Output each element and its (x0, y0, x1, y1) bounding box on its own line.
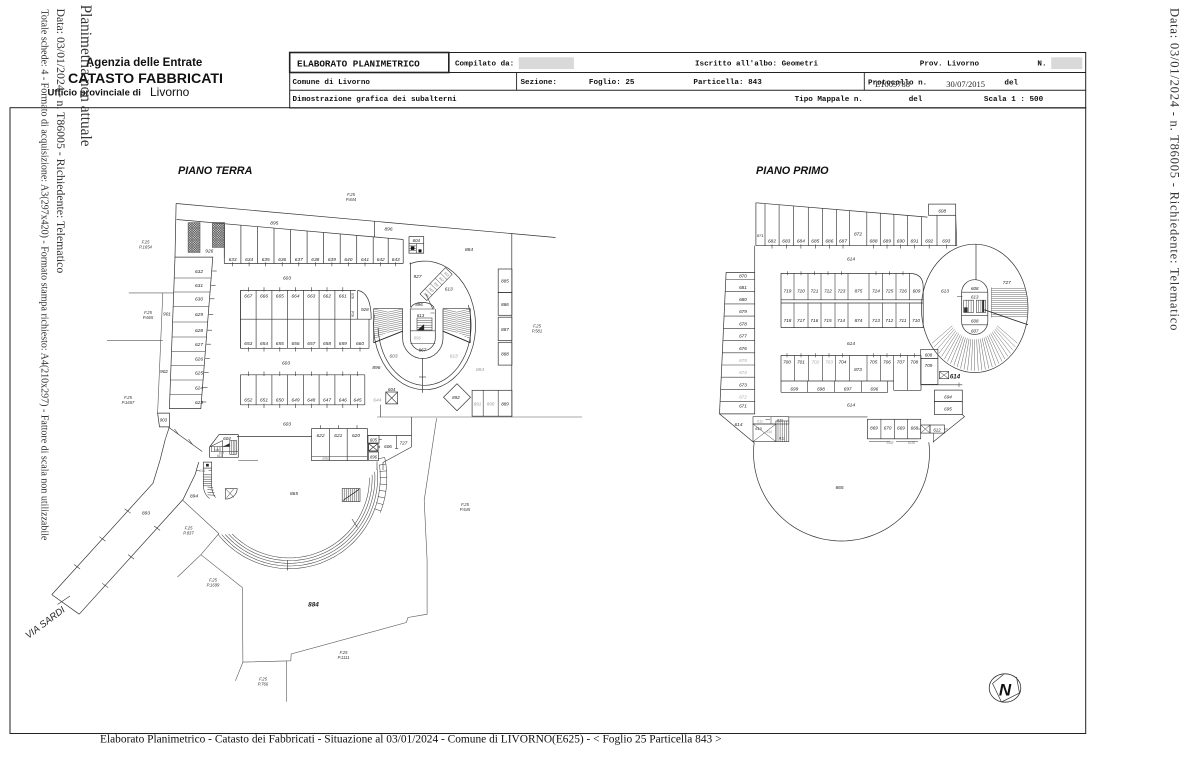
svg-text:723: 723 (838, 288, 846, 293)
svg-text:719: 719 (784, 288, 792, 293)
svg-text:707: 707 (897, 360, 905, 365)
svg-text:727: 727 (400, 440, 408, 445)
svg-text:928: 928 (361, 307, 369, 312)
svg-text:611: 611 (199, 468, 205, 473)
svg-text:Data: 03/01/2024 - n. T86005 -: Data: 03/01/2024 - n. T86005 - Richieden… (54, 9, 68, 274)
svg-text:663: 663 (307, 293, 315, 299)
svg-text:874: 874 (855, 318, 863, 323)
svg-text:688: 688 (869, 239, 877, 245)
svg-text:926: 926 (205, 249, 213, 255)
svg-text:686: 686 (825, 239, 833, 245)
svg-text:Compilato da:: Compilato da: (455, 61, 514, 69)
svg-text:610: 610 (755, 426, 762, 431)
svg-text:654: 654 (260, 341, 268, 347)
svg-text:888: 888 (501, 352, 509, 357)
svg-text:652: 652 (244, 398, 252, 404)
svg-text:638: 638 (311, 257, 319, 263)
svg-text:647: 647 (323, 398, 331, 404)
svg-text:661: 661 (339, 293, 347, 299)
svg-text:632: 632 (195, 269, 203, 275)
svg-text:del: del (909, 96, 923, 104)
svg-text:642: 642 (377, 257, 385, 263)
svg-text:708: 708 (910, 360, 918, 365)
svg-text:621: 621 (334, 433, 342, 439)
svg-text:675: 675 (739, 358, 747, 363)
svg-text:704: 704 (839, 360, 847, 365)
svg-text:648: 648 (307, 398, 315, 404)
svg-text:710: 710 (912, 318, 920, 323)
svg-text:625: 625 (195, 371, 203, 377)
svg-text:676: 676 (739, 346, 747, 351)
svg-text:891: 891 (474, 402, 482, 407)
svg-text:Foglio: 25: Foglio: 25 (589, 79, 635, 87)
svg-text:706: 706 (883, 360, 891, 365)
svg-text:622: 622 (316, 433, 324, 439)
svg-text:692: 692 (925, 239, 933, 245)
svg-text:668: 668 (911, 426, 919, 431)
svg-text:709: 709 (925, 363, 933, 368)
svg-text:ELABORATO PLANIMETRICO: ELABORATO PLANIMETRICO (297, 59, 420, 70)
svg-text:639: 639 (328, 257, 336, 263)
svg-text:872: 872 (854, 232, 862, 238)
svg-text:713: 713 (872, 318, 880, 323)
svg-text:Sezione:: Sezione: (521, 79, 557, 87)
svg-text:869: 869 (870, 426, 878, 431)
svg-text:616: 616 (766, 430, 772, 434)
svg-text:691: 691 (910, 239, 918, 245)
svg-text:886: 886 (501, 302, 509, 307)
svg-text:683: 683 (782, 239, 790, 245)
svg-text:604: 604 (388, 387, 396, 392)
svg-text:613: 613 (450, 353, 458, 359)
svg-text:636: 636 (278, 257, 286, 263)
svg-text:Elaborato Planimetrico - Catas: Elaborato Planimetrico - Catasto dei Fab… (100, 734, 722, 746)
svg-text:608: 608 (971, 319, 979, 324)
svg-text:614: 614 (950, 373, 961, 380)
svg-text:671: 671 (739, 404, 747, 409)
svg-text:711: 711 (899, 318, 907, 323)
svg-text:627: 627 (195, 342, 203, 348)
svg-text:Agenzia delle Entrate: Agenzia delle Entrate (86, 57, 202, 69)
svg-text:P.545: P.545 (460, 507, 471, 512)
svg-text:666: 666 (260, 293, 268, 299)
svg-text:608: 608 (971, 286, 979, 291)
svg-text:727: 727 (1003, 280, 1011, 286)
svg-text:669: 669 (897, 426, 905, 431)
svg-text:658: 658 (323, 341, 331, 347)
svg-text:651: 651 (260, 398, 268, 404)
svg-text:605: 605 (370, 438, 378, 443)
svg-text:649: 649 (291, 398, 299, 404)
svg-text:681: 681 (739, 285, 747, 290)
svg-text:670: 670 (884, 426, 892, 431)
svg-text:del: del (1004, 80, 1018, 88)
svg-text:884: 884 (476, 367, 484, 373)
svg-text:E1009788: E1009788 (875, 79, 910, 89)
svg-text:608: 608 (887, 440, 895, 445)
svg-text:Prov. Livorno: Prov. Livorno (920, 61, 980, 69)
svg-text:672: 672 (739, 395, 747, 400)
svg-text:Tipo Mappale n.: Tipo Mappale n. (795, 96, 863, 104)
svg-text:720: 720 (797, 288, 805, 293)
svg-text:659: 659 (339, 341, 347, 347)
svg-text:673: 673 (739, 382, 747, 387)
svg-text:611: 611 (757, 419, 763, 423)
svg-text:664: 664 (291, 293, 299, 299)
svg-text:606: 606 (384, 444, 392, 449)
svg-text:901: 901 (163, 312, 171, 317)
svg-text:P.766: P.766 (258, 682, 269, 687)
svg-text:634: 634 (245, 257, 253, 263)
svg-text:626: 626 (195, 356, 203, 362)
svg-text:641: 641 (361, 257, 369, 263)
svg-text:603: 603 (283, 275, 291, 281)
svg-text:873: 873 (854, 367, 862, 372)
svg-text:611: 611 (217, 454, 222, 458)
svg-text:613: 613 (971, 295, 979, 300)
svg-text:705: 705 (870, 360, 878, 365)
svg-text:895: 895 (270, 221, 278, 227)
svg-text:893: 893 (142, 510, 150, 516)
svg-text:629: 629 (195, 312, 203, 318)
svg-text:726: 726 (899, 288, 907, 293)
svg-text:718: 718 (784, 318, 792, 323)
svg-text:608: 608 (938, 208, 946, 213)
svg-text:896: 896 (384, 227, 392, 233)
svg-text:637: 637 (295, 257, 303, 263)
svg-text:689: 689 (883, 239, 891, 245)
svg-text:903: 903 (160, 418, 168, 423)
svg-text:603: 603 (282, 360, 290, 366)
svg-text:644: 644 (373, 398, 381, 404)
svg-text:613: 613 (941, 289, 949, 295)
svg-text:871: 871 (757, 233, 764, 238)
svg-text:700: 700 (783, 360, 791, 365)
svg-text:693: 693 (942, 239, 950, 245)
svg-text:624: 624 (195, 385, 203, 391)
svg-text:613: 613 (445, 287, 453, 293)
svg-text:P.1657: P.1657 (122, 400, 135, 405)
svg-text:603: 603 (283, 422, 291, 428)
svg-text:614: 614 (847, 402, 855, 408)
svg-text:703: 703 (825, 360, 833, 365)
svg-text:677: 677 (739, 334, 747, 339)
svg-text:646: 646 (339, 398, 347, 404)
svg-text:630: 630 (195, 297, 203, 303)
svg-text:614: 614 (847, 341, 855, 347)
svg-text:Dimostrazione grafica dei suba: Dimostrazione grafica dei subalterni (293, 96, 457, 104)
svg-text:927: 927 (413, 274, 421, 280)
svg-text:697: 697 (844, 386, 852, 391)
svg-text:875: 875 (855, 288, 863, 293)
svg-text:724: 724 (872, 288, 880, 293)
svg-text:657: 657 (307, 341, 315, 347)
svg-text:N: N (999, 681, 1012, 700)
svg-text:P.665: P.665 (143, 315, 154, 320)
svg-text:30/07/2015: 30/07/2015 (946, 79, 985, 89)
svg-text:Iscritto all'albo: Geometri: Iscritto all'albo: Geometri (695, 61, 818, 69)
svg-text:914: 914 (351, 311, 355, 317)
svg-text:694: 694 (944, 394, 952, 399)
svg-text:698: 698 (817, 386, 825, 391)
svg-text:865: 865 (836, 485, 844, 491)
svg-text:656: 656 (291, 341, 299, 347)
svg-text:Planimetria non attuale: Planimetria non attuale (77, 5, 94, 147)
svg-text:714: 714 (837, 318, 845, 323)
svg-text:614: 614 (847, 257, 855, 263)
svg-text:674: 674 (739, 370, 747, 375)
svg-text:667: 667 (244, 293, 252, 299)
svg-text:665: 665 (276, 293, 284, 299)
svg-text:679: 679 (739, 309, 747, 314)
svg-text:687: 687 (839, 239, 847, 245)
svg-text:889: 889 (501, 402, 509, 407)
svg-text:Totale schede: 4 - Formato di: Totale schede: 4 - Formato di acquisizio… (38, 10, 49, 541)
svg-text:P.837: P.837 (183, 531, 194, 536)
svg-text:915: 915 (351, 293, 355, 299)
svg-text:P.1654: P.1654 (139, 245, 152, 250)
svg-text:640: 640 (344, 257, 352, 263)
svg-text:613: 613 (417, 313, 425, 318)
svg-text:695: 695 (944, 407, 952, 412)
svg-text:715: 715 (824, 318, 832, 323)
svg-text:645: 645 (353, 398, 361, 404)
svg-text:662: 662 (323, 293, 331, 299)
svg-text:Livorno: Livorno (150, 85, 190, 99)
svg-text:P.844: P.844 (346, 197, 357, 202)
svg-text:Particella: 843: Particella: 843 (693, 79, 762, 87)
svg-text:Comune di Livorno: Comune di Livorno (293, 79, 371, 87)
svg-text:608: 608 (925, 352, 933, 357)
svg-text:Scala 1 : 500: Scala 1 : 500 (984, 96, 1044, 104)
svg-text:603: 603 (389, 353, 397, 359)
svg-text:653: 653 (244, 341, 252, 347)
svg-text:608: 608 (908, 440, 916, 445)
svg-text:Data: 03/01/2024 - n. T86005 -: Data: 03/01/2024 - n. T86005 - Richieden… (1168, 8, 1182, 331)
svg-text:896: 896 (370, 455, 378, 460)
svg-text:725: 725 (886, 288, 894, 293)
svg-text:607: 607 (971, 329, 979, 334)
svg-text:628: 628 (195, 328, 203, 334)
svg-text:890: 890 (487, 402, 495, 407)
svg-text:611: 611 (779, 437, 785, 441)
svg-text:902: 902 (160, 369, 168, 374)
svg-text:702: 702 (812, 360, 820, 365)
svg-text:884: 884 (308, 602, 319, 609)
svg-text:612: 612 (933, 427, 941, 432)
svg-text:717: 717 (797, 318, 805, 323)
svg-text:623: 623 (195, 400, 203, 406)
svg-text:896: 896 (372, 365, 380, 371)
svg-text:867: 867 (419, 348, 427, 353)
svg-text:614: 614 (734, 422, 742, 428)
svg-text:716: 716 (810, 318, 818, 323)
svg-text:660: 660 (356, 341, 364, 347)
svg-text:884: 884 (465, 247, 473, 253)
svg-text:894: 894 (190, 494, 198, 500)
svg-text:684: 684 (797, 239, 805, 245)
svg-text:PIANO TERRA: PIANO TERRA (178, 165, 253, 177)
svg-text:699: 699 (790, 386, 798, 391)
svg-text:690: 690 (897, 239, 905, 245)
svg-text:P.581: P.581 (532, 329, 542, 334)
svg-text:722: 722 (824, 288, 832, 293)
svg-text:682: 682 (768, 239, 776, 245)
svg-text:896: 896 (322, 456, 330, 461)
svg-text:P.1699: P.1699 (207, 583, 220, 588)
svg-text:635: 635 (262, 257, 270, 263)
svg-text:680: 680 (739, 297, 747, 302)
svg-text:620: 620 (352, 433, 360, 439)
svg-text:712: 712 (885, 318, 893, 323)
svg-text:896: 896 (414, 335, 422, 340)
svg-text:P.1111: P.1111 (338, 655, 350, 660)
svg-text:685: 685 (811, 239, 819, 245)
svg-text:678: 678 (739, 321, 747, 326)
svg-text:650: 650 (276, 398, 284, 404)
svg-text:655: 655 (276, 341, 284, 347)
svg-text:865: 865 (290, 491, 298, 497)
svg-text:885: 885 (501, 279, 509, 284)
svg-text:870: 870 (739, 274, 747, 279)
svg-text:631: 631 (195, 283, 203, 289)
svg-text:892: 892 (452, 395, 460, 400)
svg-text:896: 896 (415, 302, 423, 307)
svg-text:N.: N. (1037, 61, 1046, 69)
svg-text:701: 701 (797, 360, 805, 365)
svg-text:696: 696 (870, 386, 878, 391)
svg-text:721: 721 (811, 288, 819, 293)
svg-text:PIANO PRIMO: PIANO PRIMO (756, 165, 829, 177)
svg-text:633: 633 (229, 257, 237, 263)
svg-text:643: 643 (392, 257, 400, 263)
svg-text:604: 604 (413, 238, 421, 243)
svg-text:609: 609 (913, 288, 921, 293)
svg-text:887: 887 (501, 327, 509, 332)
